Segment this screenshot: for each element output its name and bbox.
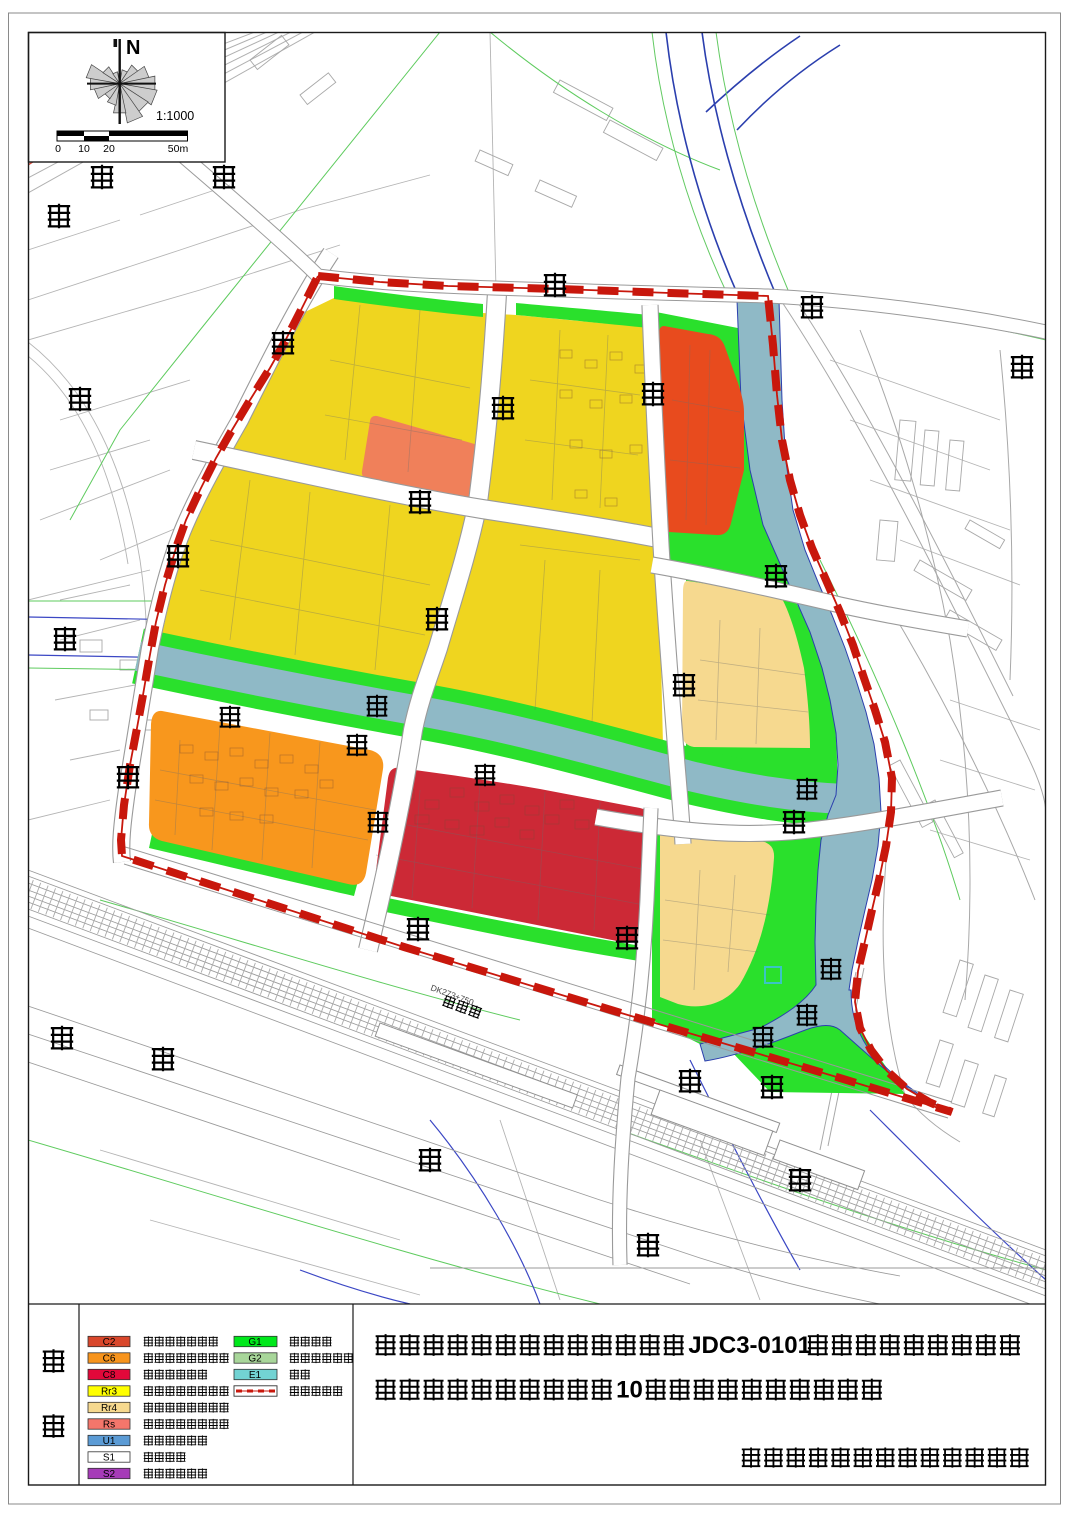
svg-text:1:1000: 1:1000 — [156, 109, 194, 123]
svg-text:Rr4: Rr4 — [101, 1403, 118, 1414]
svg-text:0: 0 — [55, 143, 61, 155]
svg-text:E1: E1 — [249, 1370, 262, 1381]
svg-text:10: 10 — [78, 143, 90, 155]
svg-text:S2: S2 — [103, 1469, 116, 1480]
svg-text:10: 10 — [616, 1377, 643, 1404]
svg-text:G2: G2 — [248, 1354, 262, 1365]
svg-text:G1: G1 — [248, 1337, 262, 1348]
svg-text:50m: 50m — [168, 143, 189, 155]
svg-text:JDC3-0101: JDC3-0101 — [688, 1332, 811, 1359]
svg-text:C6: C6 — [103, 1354, 116, 1365]
svg-text:C8: C8 — [103, 1370, 116, 1381]
svg-text:Rs: Rs — [103, 1420, 115, 1431]
svg-text:S1: S1 — [103, 1453, 116, 1464]
svg-text:20: 20 — [103, 143, 115, 155]
svg-text:C2: C2 — [103, 1337, 116, 1348]
svg-text:U1: U1 — [103, 1436, 116, 1447]
svg-text:N: N — [126, 37, 140, 59]
svg-text:Rr3: Rr3 — [101, 1387, 118, 1398]
